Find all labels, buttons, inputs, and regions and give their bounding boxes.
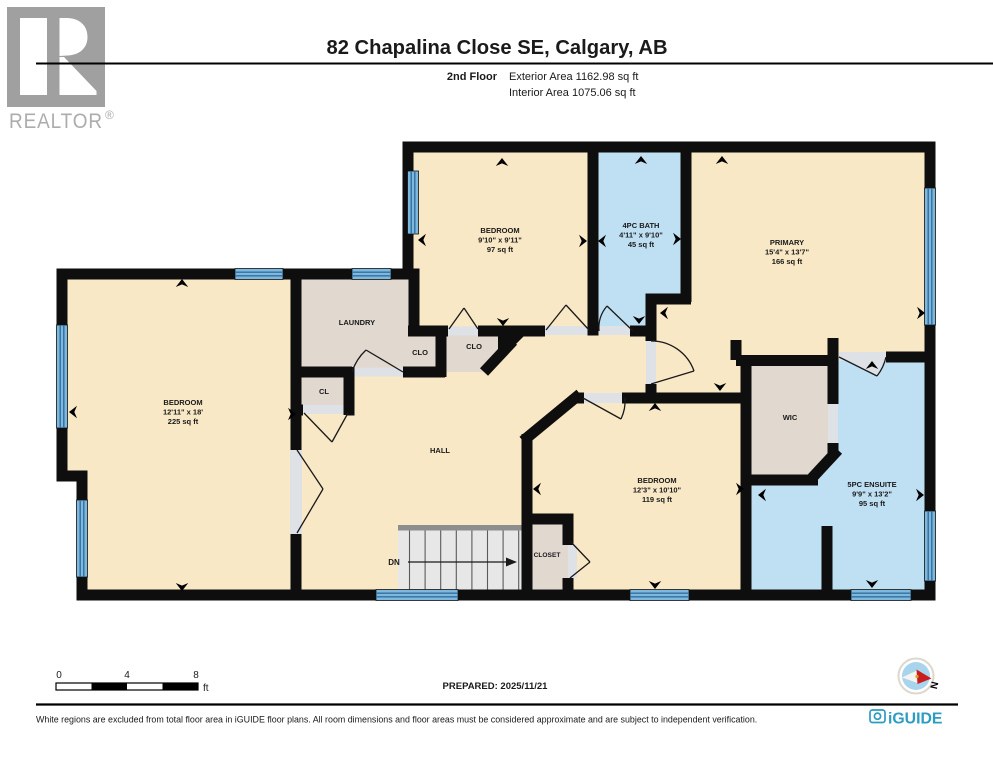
svg-text:12'11" x 18': 12'11" x 18' (163, 408, 203, 417)
svg-text:White regions are excluded fro: White regions are excluded from total fl… (36, 715, 757, 725)
svg-text:4: 4 (124, 670, 130, 681)
svg-text:WIC: WIC (783, 413, 798, 422)
svg-text:LAUNDRY: LAUNDRY (339, 318, 375, 327)
svg-text:9'10" x 9'11": 9'10" x 9'11" (478, 236, 522, 245)
svg-text:®: ® (105, 108, 114, 122)
svg-text:BEDROOM: BEDROOM (480, 226, 519, 235)
svg-text:BEDROOM: BEDROOM (637, 476, 676, 485)
svg-text:97 sq ft: 97 sq ft (487, 245, 514, 254)
svg-text:CLO: CLO (466, 342, 482, 351)
svg-text:CL: CL (319, 387, 329, 396)
svg-text:9'9" x 13'2": 9'9" x 13'2" (852, 490, 892, 499)
svg-text:2nd Floor: 2nd Floor (447, 71, 498, 83)
svg-text:119 sq ft: 119 sq ft (642, 495, 673, 504)
svg-text:45 sq ft: 45 sq ft (628, 240, 655, 249)
svg-text:4'11" x 9'10": 4'11" x 9'10" (619, 231, 663, 240)
svg-text:ft: ft (203, 683, 209, 694)
svg-text:iGUIDE: iGUIDE (888, 711, 942, 728)
svg-text:PRIMARY: PRIMARY (770, 238, 804, 247)
svg-text:225 sq ft: 225 sq ft (168, 417, 199, 426)
svg-text:8: 8 (193, 670, 199, 681)
svg-text:CLO: CLO (412, 348, 428, 357)
svg-text:DN: DN (388, 558, 400, 567)
svg-text:CLOSET: CLOSET (534, 552, 561, 559)
svg-text:0: 0 (56, 670, 62, 681)
svg-text:82 Chapalina Close SE, Calgary: 82 Chapalina Close SE, Calgary, AB (326, 37, 667, 59)
svg-text:PREPARED: 2025/11/21: PREPARED: 2025/11/21 (443, 681, 549, 692)
svg-text:HALL: HALL (430, 446, 450, 455)
svg-text:166 sq ft: 166 sq ft (772, 257, 803, 266)
svg-text:REALTOR: REALTOR (9, 109, 103, 133)
svg-text:95 sq ft: 95 sq ft (859, 499, 886, 508)
svg-text:15'4" x 13'7": 15'4" x 13'7" (765, 248, 809, 257)
svg-text:4PC BATH: 4PC BATH (623, 221, 660, 230)
svg-text:Exterior Area 1162.98 sq ft: Exterior Area 1162.98 sq ft (509, 71, 638, 83)
svg-text:Interior Area 1075.06 sq ft: Interior Area 1075.06 sq ft (509, 87, 636, 99)
svg-text:5PC ENSUITE: 5PC ENSUITE (847, 480, 896, 489)
svg-text:12'3" x 10'10": 12'3" x 10'10" (633, 486, 682, 495)
svg-text:BEDROOM: BEDROOM (163, 398, 202, 407)
